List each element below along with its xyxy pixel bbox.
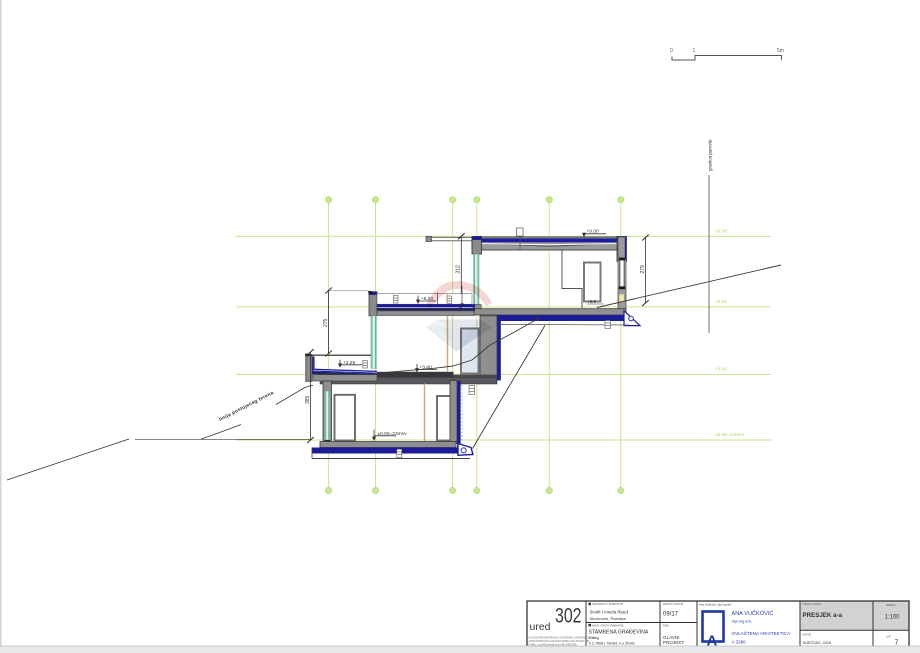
svg-text:NAZIV I VRSTA GRAĐEVINE: NAZIV I VRSTA GRAĐEVINE [592, 624, 624, 627]
svg-text:±0.00=23mnv: ±0.00=23mnv [715, 432, 745, 438]
svg-text:279: 279 [640, 265, 646, 274]
svg-text:385: 385 [305, 395, 311, 404]
svg-text:OVLAŠTENA ARHITEKTICA: OVLAŠTENA ARHITEKTICA [732, 630, 792, 636]
svg-text:1: 1 [693, 48, 696, 54]
svg-text:+9.30: +9.30 [715, 229, 727, 235]
svg-text:±0.00=23mnv: ±0.00=23mnv [378, 431, 408, 437]
svg-text:Kaleg: Kaleg [589, 636, 599, 640]
svg-text:Stockholm, Švedska: Stockholm, Švedska [590, 616, 627, 621]
svg-text:PRESJEK a-a: PRESJEK a-a [803, 612, 843, 619]
svg-text:+9.30: +9.30 [587, 229, 599, 235]
svg-text:5m: 5m [777, 48, 784, 54]
svg-text:FAZA: FAZA [663, 624, 669, 627]
svg-text:275: 275 [323, 318, 329, 327]
svg-text:+3.00: +3.00 [715, 367, 727, 373]
svg-text:312: 312 [456, 265, 462, 274]
svg-text:09/17: 09/17 [663, 612, 679, 618]
svg-text:A 3360: A 3360 [732, 639, 747, 644]
svg-text:granica parcele: granica parcele [708, 139, 713, 171]
svg-text:MJESTO I DATUM: MJESTO I DATUM [663, 603, 683, 606]
svg-text:0: 0 [670, 48, 673, 54]
svg-text:Ana Vučković, dipl.ing.arh.: Ana Vučković, dipl.ing.arh. [699, 603, 732, 607]
svg-text:NARUČITELJ / INVESTITOR: NARUČITELJ / INVESTITOR [592, 603, 623, 606]
svg-text:+6.00: +6.00 [715, 299, 727, 305]
svg-text:7: 7 [895, 639, 899, 646]
svg-text:ured: ured [530, 621, 551, 633]
svg-text:dipl.ing.arh,: dipl.ing.arh, [732, 618, 753, 623]
svg-text:Snoilt i Amela Reed: Snoilt i Amela Reed [590, 610, 629, 615]
svg-text:LIST: LIST [886, 636, 892, 639]
svg-text:k.č.7808 i 7808/1 k.o.Šmrič: k.č.7808 i 7808/1 k.o.Šmrič [589, 641, 635, 646]
svg-text:ANA VUČKOVIĆ: ANA VUČKOVIĆ [732, 610, 774, 617]
svg-text:STAMBENA GRAĐEVINA: STAMBENA GRAĐEVINA [589, 629, 649, 635]
svg-text:SIJEČANJ, 2016: SIJEČANJ, 2016 [803, 640, 832, 645]
svg-text:OZNAKA I NAZIV: OZNAKA I NAZIV [803, 603, 822, 606]
svg-text:MJERILO: MJERILO [886, 604, 897, 607]
svg-text:+6.0: +6.0 [587, 299, 597, 304]
svg-text:+3.28: +3.28 [343, 360, 355, 366]
svg-text:PROJEKT: PROJEKT [663, 640, 684, 645]
svg-text:1:100: 1:100 [885, 614, 901, 620]
svg-text:302: 302 [555, 605, 582, 628]
svg-text:DATUM: DATUM [803, 633, 811, 636]
